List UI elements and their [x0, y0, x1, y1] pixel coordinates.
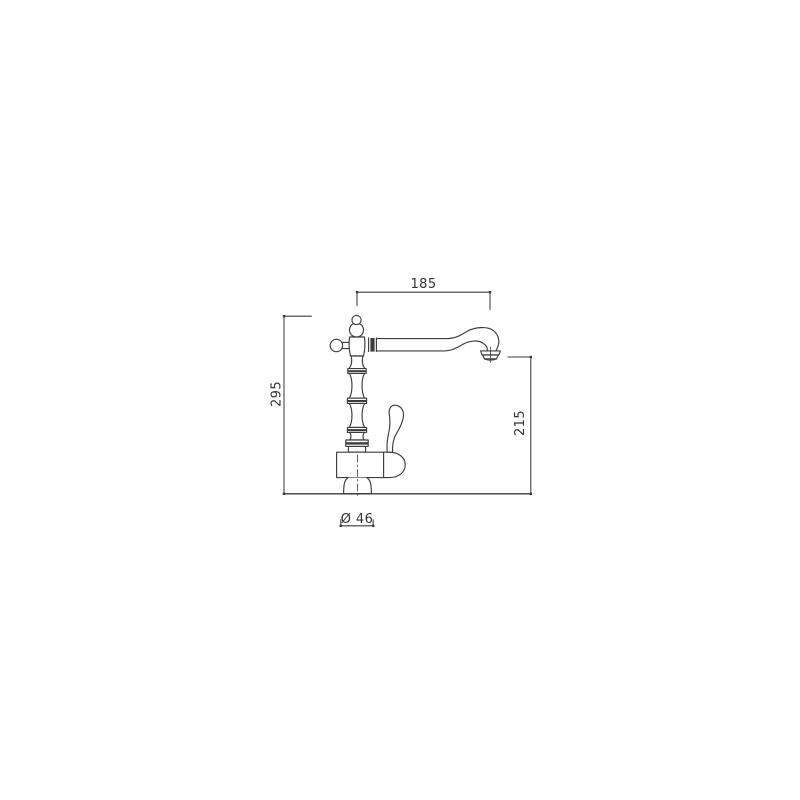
dimension-outlet-height: 215 — [508, 356, 532, 495]
spout-upper-edge — [377, 328, 499, 351]
finial-ball-small — [352, 315, 361, 324]
body-block — [337, 452, 384, 477]
dimension-spout-reach: 185 — [356, 277, 491, 310]
spout-lower-edge — [377, 341, 487, 351]
faucet-technical-drawing: 185 295 215 Ø 46 — [0, 0, 800, 800]
dimension-label-outlet-height: 215 — [513, 410, 528, 436]
spout-collar — [369, 338, 377, 352]
mixer-body — [337, 452, 406, 477]
dimension-label-total-height: 295 — [270, 381, 285, 407]
turned-column — [346, 356, 368, 452]
dimension-base-diameter: Ø 46 — [340, 512, 375, 527]
finial — [350, 315, 364, 337]
dimension-total-height: 295 — [270, 315, 312, 495]
drawing-canvas: 185 295 215 Ø 46 — [0, 0, 800, 800]
lever-handle — [387, 405, 404, 452]
side-knob — [330, 339, 349, 351]
body-right-cap — [384, 452, 406, 477]
spout — [377, 328, 500, 363]
dimension-label-spout-reach: 185 — [410, 277, 436, 292]
aerator-outlet — [481, 347, 501, 363]
valve-body — [349, 337, 365, 356]
dimension-label-base-diameter: Ø 46 — [341, 512, 374, 527]
